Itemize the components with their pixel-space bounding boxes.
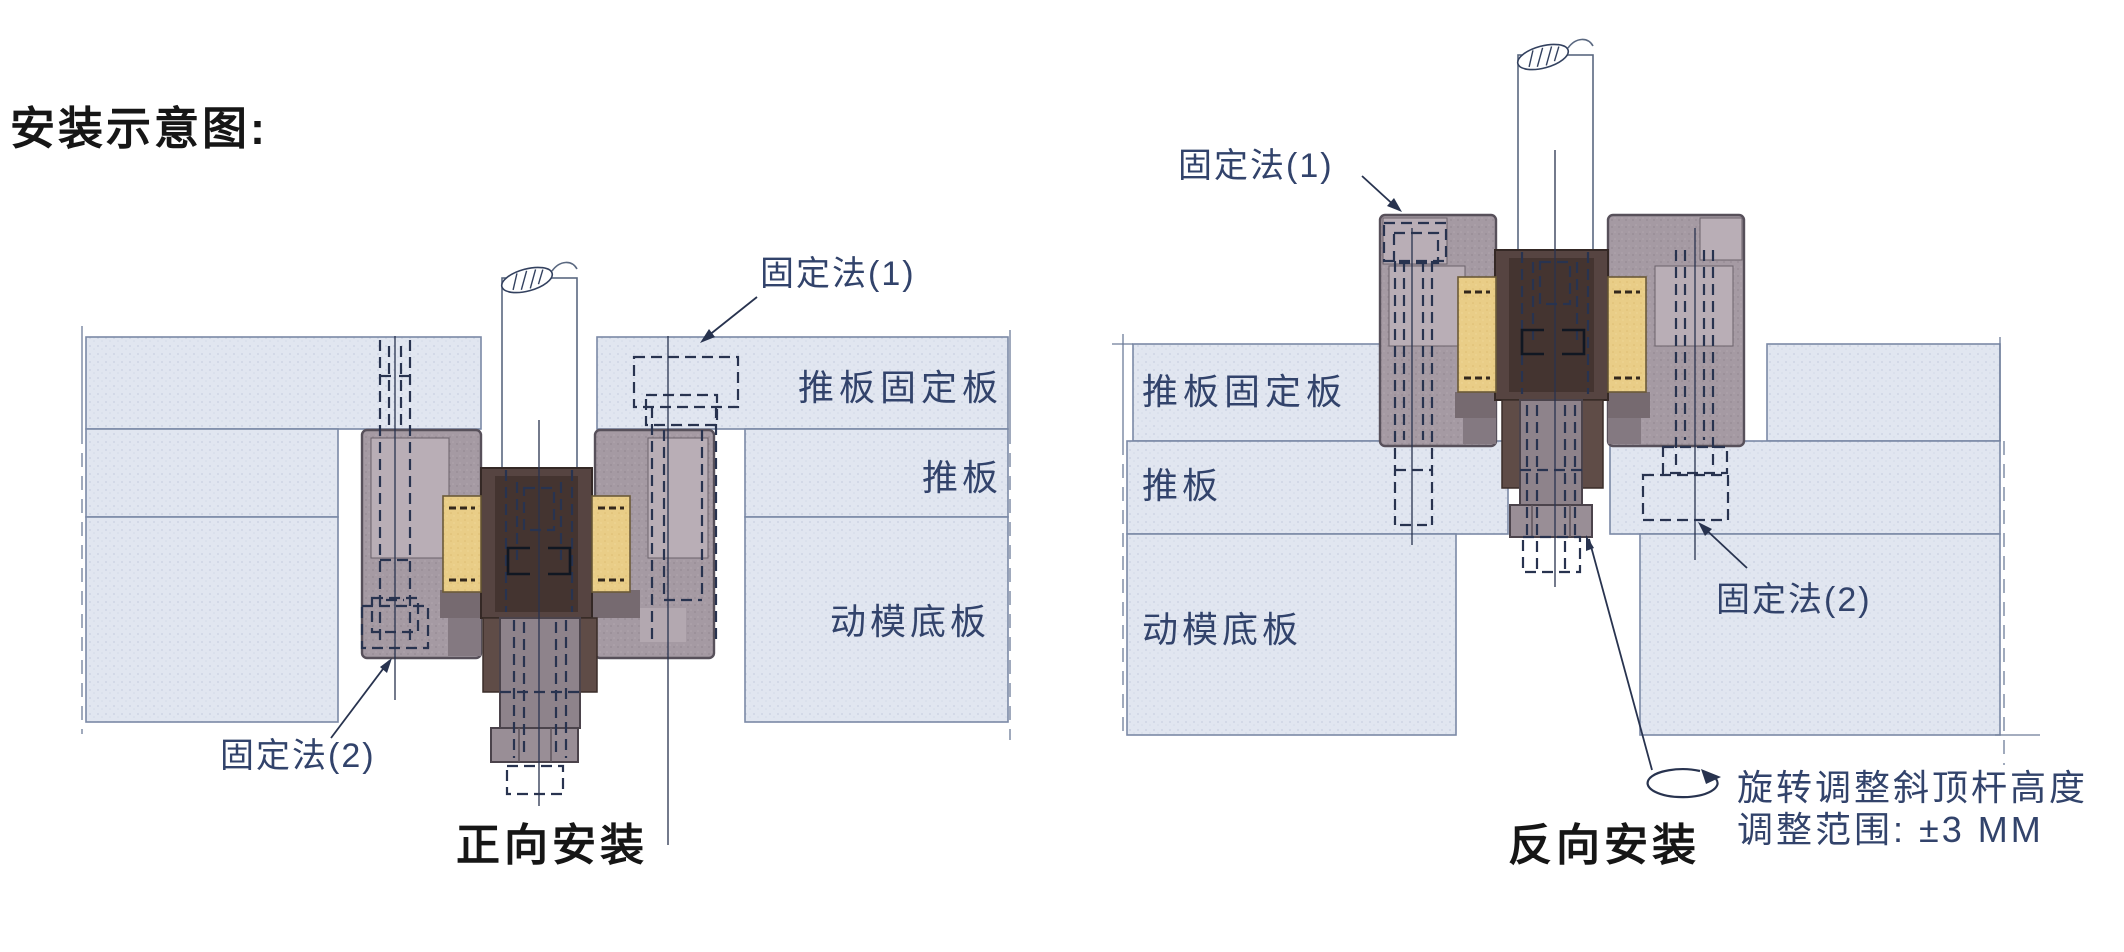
forward-center-block [481, 468, 592, 618]
forward-adjust-screw [483, 618, 597, 762]
reverse-base-plate-right [1640, 534, 2000, 735]
reverse-fixing1-arrow [1362, 176, 1402, 212]
reverse-lifter-rod [1515, 39, 1593, 250]
forward-band-right [592, 590, 640, 618]
reverse-screw-tip-dashed-box [1523, 537, 1580, 572]
installation-schematic: 安装示意图: 固定法(1) 推板固定板 推板 动模底板 固定法(2) 正向安装 … [0, 0, 2124, 952]
forward-band-left [440, 590, 481, 618]
reverse-center-block [1495, 250, 1608, 400]
reverse-adjust-screw [1502, 400, 1603, 537]
forward-retainer-plate-label: 推板固定板 [798, 368, 1003, 408]
forward-fixing2-arrow [331, 658, 392, 738]
forward-caption: 正向安装 [456, 822, 648, 870]
reverse-retainer-plate-label: 推板固定板 [1142, 372, 1347, 412]
reverse-caption: 反向安装 [1508, 822, 1700, 870]
forward-fixing1-arrow [700, 297, 757, 343]
rod-break-lip [552, 262, 577, 271]
rotate-adjust-icon [1648, 769, 1721, 797]
forward-lifter-rod [499, 262, 577, 468]
forward-ejector-plate-label: 推板 [922, 458, 1002, 498]
reverse-ejector-plate-label: 推板 [1142, 466, 1222, 506]
reverse-adjust-note-line1: 旋转调整斜顶杆高度 [1737, 768, 2088, 808]
forward-gib-right [592, 496, 630, 592]
page-title: 安装示意图: [10, 104, 268, 154]
forward-fixing2-label: 固定法(2) [220, 738, 376, 775]
reverse-retainer-plate-right [1767, 344, 2000, 441]
reverse-fixing2-label: 固定法(2) [1716, 582, 1872, 619]
reverse-base-plate-label: 动模底板 [1142, 610, 1302, 650]
reverse-gib-right [1608, 277, 1646, 392]
reverse-band-left [1455, 392, 1496, 418]
forward-screw-tip-dashed-box [507, 766, 563, 794]
forward-retainer-plate-left [86, 337, 481, 429]
forward-fixing1-label: 固定法(1) [760, 256, 916, 293]
reverse-fixing1-label: 固定法(1) [1178, 148, 1334, 185]
reverse-lock-nut [1510, 505, 1592, 537]
forward-ejector-plate-left [86, 429, 338, 517]
reverse-adjust-note-line2: 调整范围: ±3 MM [1737, 810, 2044, 850]
reverse-band-right [1608, 392, 1650, 418]
forward-gib-left [443, 496, 481, 592]
reverse-gib-left [1458, 277, 1496, 392]
rod-break-lip [1568, 39, 1593, 48]
forward-base-plate-label: 动模底板 [830, 602, 990, 642]
forward-base-plate-left [86, 517, 338, 722]
